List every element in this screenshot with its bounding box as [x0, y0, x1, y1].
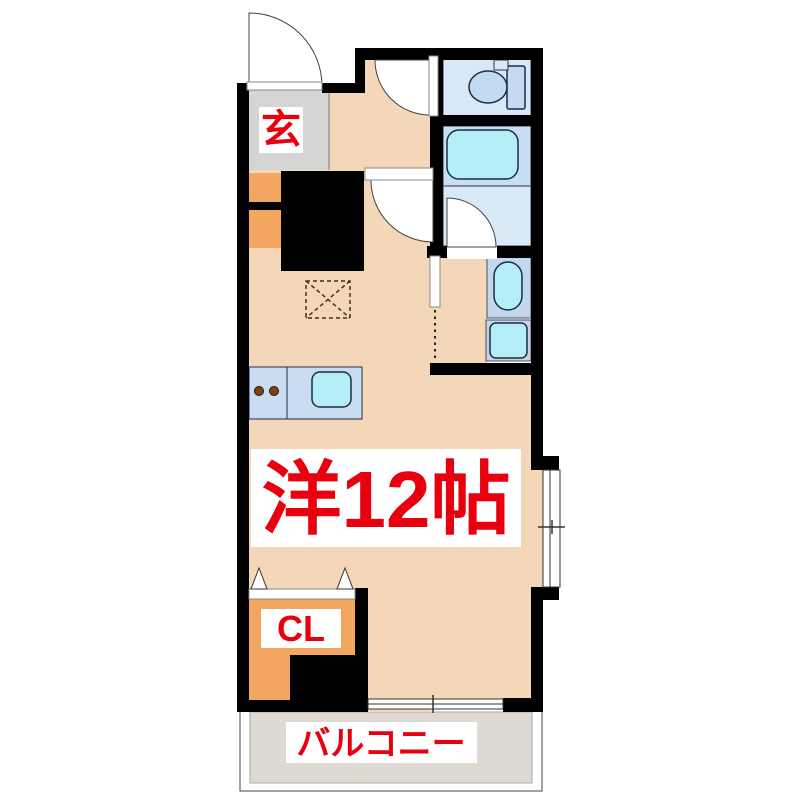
closet-label: CL	[277, 608, 325, 649]
main-room-label: 洋12帖	[262, 455, 511, 544]
washer-pan-icon	[490, 323, 527, 358]
wall-window-stub-top	[531, 456, 559, 470]
pipe-space-divider	[249, 202, 281, 210]
pipe-space-block-1	[249, 173, 281, 202]
toilet-tank-icon	[507, 66, 525, 109]
floor-plan: 玄 洋12帖 CL バルコニー	[0, 0, 800, 800]
wall-right-lower	[531, 598, 543, 712]
genkan-label: 玄	[261, 108, 301, 152]
bathtub-icon	[447, 130, 518, 179]
entrance-door-leaf	[247, 82, 322, 90]
wall-toilet-bath	[430, 115, 543, 126]
stove-burner-icon	[270, 387, 279, 396]
pipe-space-block-2	[249, 210, 281, 248]
wash-basin-icon	[494, 262, 522, 310]
wall-right-upper	[531, 48, 543, 463]
wall-closet-right	[355, 588, 368, 655]
wall-left	[237, 83, 249, 712]
toilet-bowl-icon	[469, 71, 507, 103]
wall-entrance-riser	[355, 50, 365, 93]
sliding-door-panel	[430, 256, 440, 307]
wall-bottom-right	[503, 698, 543, 712]
closet-block	[290, 655, 368, 700]
wall-laundry-bottom	[430, 363, 543, 375]
kitchen-block	[281, 171, 364, 271]
wall-top	[355, 48, 543, 60]
closet-door-leaf	[249, 589, 355, 599]
window-sill-floor	[531, 470, 543, 587]
balcony-label: バルコニー	[296, 725, 465, 763]
wall-bathdoor-stub-right	[497, 246, 531, 258]
bath-door-opening	[447, 246, 497, 259]
kitchen-sink-icon	[312, 372, 351, 407]
toilet-cistern-icon	[494, 60, 508, 70]
stove-burner-icon	[255, 387, 264, 396]
toilet-door-leaf	[429, 56, 438, 116]
room-door-leaf	[365, 168, 433, 180]
wall-bottom-left	[237, 700, 368, 712]
